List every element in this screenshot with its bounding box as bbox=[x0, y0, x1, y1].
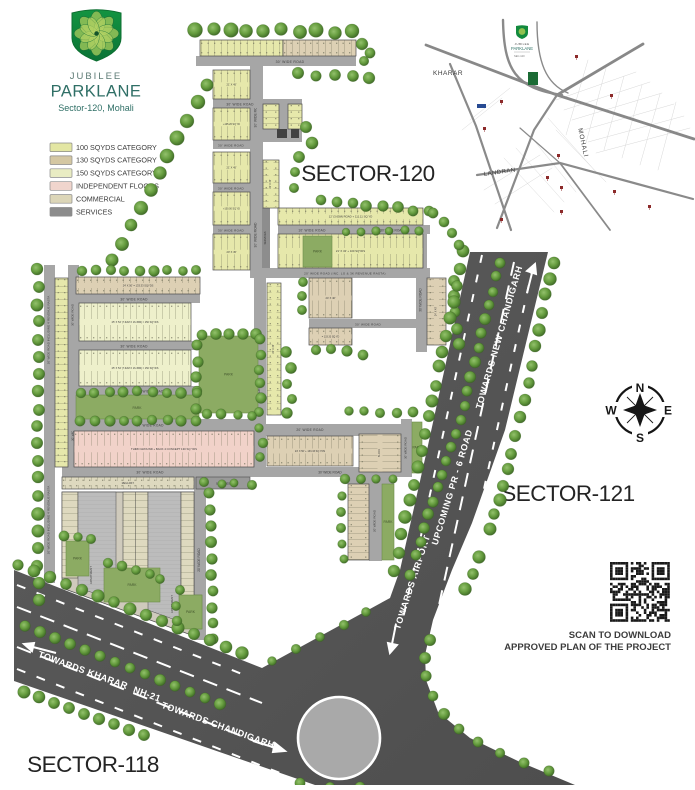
svg-text:21' X 43' + 100 SQYDS: 21' X 43' + 100 SQYDS bbox=[336, 249, 365, 253]
svg-text:20' WIDE ROAD: 20' WIDE ROAD bbox=[197, 548, 201, 572]
svg-text:MEGA MKT.: MEGA MKT. bbox=[122, 482, 135, 485]
svg-text:20' X 45': 20' X 45' bbox=[269, 179, 272, 189]
svg-text:SECTOR-121: SECTOR-121 bbox=[501, 481, 634, 506]
svg-text:N: N bbox=[636, 381, 645, 395]
svg-text:100 SQYDS CATEGORY: 100 SQYDS CATEGORY bbox=[76, 143, 157, 152]
svg-text:E: E bbox=[664, 404, 672, 418]
svg-text:24' X 40': 24' X 40' bbox=[435, 306, 438, 316]
svg-text:24' X 50' + 133.33 SQ YDS: 24' X 50' + 133.33 SQ YDS bbox=[295, 450, 325, 453]
svg-text:30' WIDE ROAD: 30' WIDE ROAD bbox=[355, 323, 382, 327]
svg-text:20' WIDE ROAD (INC. LG & 3K RE: 20' WIDE ROAD (INC. LG & 3K REVENUE RAST… bbox=[304, 272, 386, 276]
svg-text:30' WIDE ROAD: 30' WIDE ROAD bbox=[218, 187, 245, 191]
svg-text:S: S bbox=[636, 431, 644, 445]
svg-text:24' X 40': 24' X 40' bbox=[326, 296, 336, 300]
svg-text:PARK: PARK bbox=[224, 373, 234, 377]
svg-text:30' WIDE ROAD: 30' WIDE ROAD bbox=[419, 288, 423, 312]
svg-text:PARK: PARK bbox=[186, 610, 196, 614]
svg-text:25' X 54' (7.62M X 16.45M) = 1: 25' X 54' (7.62M X 16.45M) = 150 SQYDS bbox=[112, 367, 159, 370]
svg-text:30' WIDE ROAD: 30' WIDE ROAD bbox=[136, 471, 164, 475]
svg-text:PARKLANE: PARKLANE bbox=[511, 46, 533, 51]
svg-text:PARKLANE: PARKLANE bbox=[51, 83, 142, 101]
svg-text:20' X 45': 20' X 45' bbox=[227, 250, 237, 254]
svg-text:130 SQYDS CATEGORY: 130 SQYDS CATEGORY bbox=[76, 156, 157, 165]
svg-text:150 SQYDS CATEGORY: 150 SQYDS CATEGORY bbox=[76, 169, 157, 178]
svg-text:20' WIDE ROAD: 20' WIDE ROAD bbox=[296, 428, 324, 432]
svg-text:SERVICES: SERVICES bbox=[263, 231, 267, 244]
svg-text:SEC-120: SEC-120 bbox=[514, 54, 525, 58]
svg-text:30' WIDE ROAD: 30' WIDE ROAD bbox=[226, 103, 254, 107]
svg-text:W: W bbox=[605, 404, 617, 418]
svg-text:10' WIDE ROAD: 10' WIDE ROAD bbox=[298, 229, 326, 233]
svg-text:THIRD GROUND + BACK 4 CONCEPT: THIRD GROUND + BACK 4 CONCEPT 130 SQ YDS bbox=[131, 447, 197, 451]
svg-text:30' WIDE ROAD: 30' WIDE ROAD bbox=[318, 471, 342, 475]
svg-text:12' (3.65M) ROAD + 111.11 SQ Y: 12' (3.65M) ROAD + 111.11 SQ YD bbox=[329, 215, 372, 219]
svg-text:JUBILEE: JUBILEE bbox=[70, 71, 123, 82]
svg-text:20' X 45': 20' X 45' bbox=[272, 344, 275, 354]
svg-text:SCAN TO DOWNLOAD: SCAN TO DOWNLOAD bbox=[569, 630, 671, 641]
svg-text:30' WIDE ROAD: 30' WIDE ROAD bbox=[218, 229, 245, 233]
svg-text:21' X 45': 21' X 45' bbox=[227, 83, 237, 87]
svg-text:20' WIDE ROAD: 20' WIDE ROAD bbox=[373, 509, 377, 532]
svg-text:24' X 50' = 133.33 SQYDS: 24' X 50' = 133.33 SQYDS bbox=[123, 284, 154, 288]
svg-text:30' WIDE ROAD: 30' WIDE ROAD bbox=[120, 345, 148, 349]
svg-text:PARK: PARK bbox=[73, 557, 83, 561]
svg-text:21' X 45': 21' X 45' bbox=[227, 166, 237, 170]
svg-text:+100.00 SQ YD: +100.00 SQ YD bbox=[223, 208, 240, 211]
svg-text:30' WIDE ROAD: 30' WIDE ROAD bbox=[404, 436, 408, 459]
svg-text:30' WIDE ROAD: 30' WIDE ROAD bbox=[254, 222, 258, 248]
svg-text:= 133.33 SQ YD: = 133.33 SQ YD bbox=[322, 336, 340, 339]
svg-text:20' WIDE ROAD INCLUDING 4' REV: 20' WIDE ROAD INCLUDING 4' REVENUE RASTA bbox=[47, 486, 51, 554]
svg-text:Sector-120, Mohali: Sector-120, Mohali bbox=[58, 103, 134, 113]
svg-text:30' WIDE ROAD: 30' WIDE ROAD bbox=[71, 303, 75, 326]
svg-text:30' WIDE ROAD: 30' WIDE ROAD bbox=[276, 60, 305, 64]
svg-text:PARK: PARK bbox=[313, 250, 323, 254]
svg-text:KHARAR: KHARAR bbox=[433, 70, 463, 77]
svg-text:PARK: PARK bbox=[128, 583, 138, 587]
svg-text:+105.26 SQ YD: +105.26 SQ YD bbox=[223, 123, 240, 126]
svg-text:BLOCK: BLOCK bbox=[378, 449, 381, 458]
svg-text:APARTMENT: APARTMENT bbox=[89, 566, 93, 584]
svg-text:PARK: PARK bbox=[384, 520, 394, 524]
svg-text:30' WIDE ROAD: 30' WIDE ROAD bbox=[120, 298, 148, 302]
svg-text:SECTOR-120: SECTOR-120 bbox=[301, 161, 434, 186]
svg-text:25' X 54' (7.62M X 16.45M) = 1: 25' X 54' (7.62M X 16.45M) = 150 SQYDS bbox=[112, 321, 159, 324]
svg-text:30' WIDE ROAD: 30' WIDE ROAD bbox=[218, 144, 245, 148]
svg-text:COMMERCIAL: COMMERCIAL bbox=[76, 194, 125, 203]
svg-text:APPROVED PLAN OF THE PROJECT: APPROVED PLAN OF THE PROJECT bbox=[504, 642, 671, 653]
svg-text:SERVICES: SERVICES bbox=[76, 207, 112, 216]
svg-text:PARK: PARK bbox=[133, 406, 143, 410]
svg-text:SECTOR-118: SECTOR-118 bbox=[27, 752, 159, 777]
svg-text:20' WIDE ROAD INCLUDING 4' REV: 20' WIDE ROAD INCLUDING 4' REVENUE RASTA bbox=[47, 296, 51, 364]
